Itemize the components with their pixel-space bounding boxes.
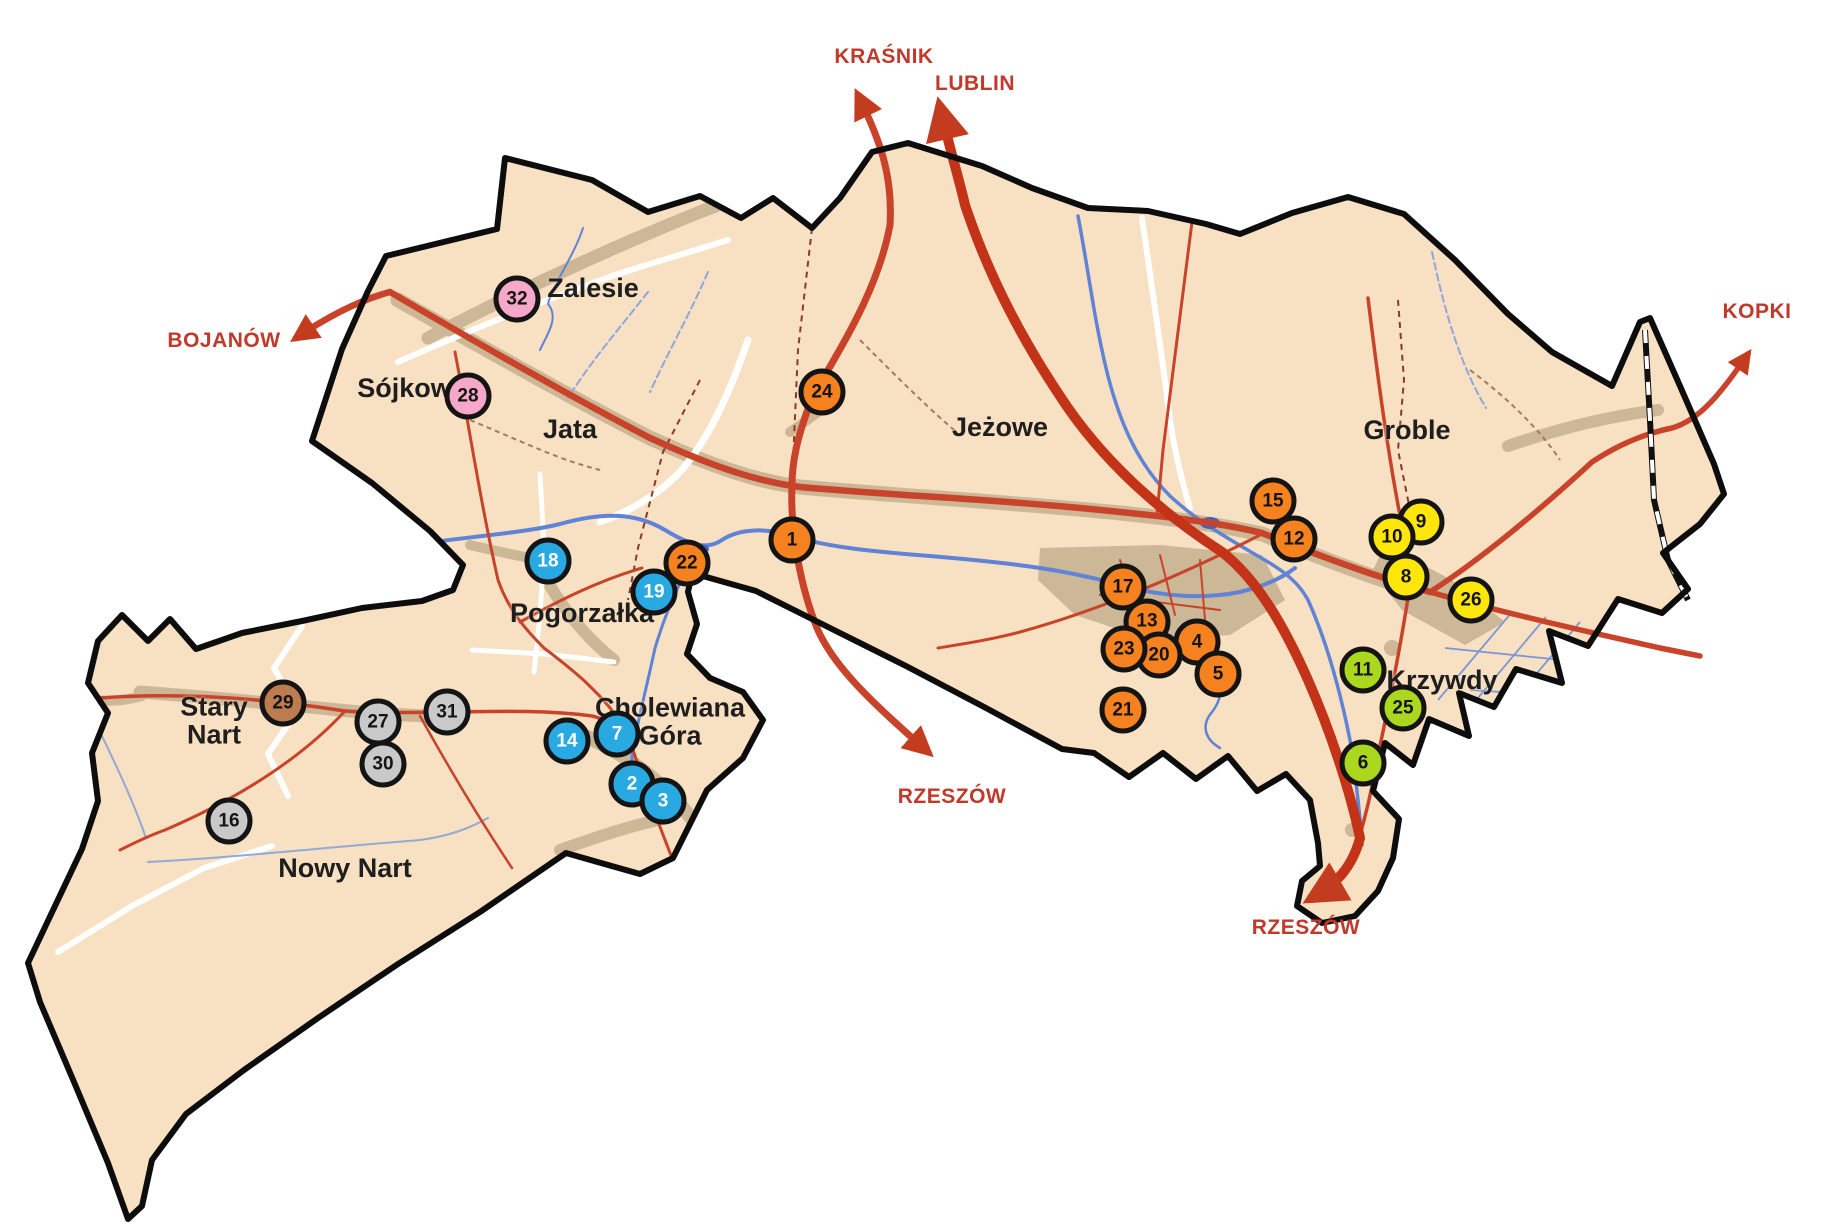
map-marker-1[interactable]: 1	[769, 517, 816, 564]
map-marker-14[interactable]: 14	[544, 718, 591, 765]
map-marker-3[interactable]: 3	[640, 778, 687, 825]
map-marker-31[interactable]: 31	[424, 689, 471, 736]
map-marker-15[interactable]: 15	[1250, 478, 1297, 525]
map-marker-29[interactable]: 29	[260, 680, 307, 727]
map-marker-6[interactable]: 6	[1340, 740, 1387, 787]
base-map	[0, 0, 1821, 1226]
map-marker-26[interactable]: 26	[1448, 577, 1495, 624]
map-marker-21[interactable]: 21	[1100, 687, 1147, 734]
map-marker-18[interactable]: 18	[525, 538, 572, 585]
map-marker-22[interactable]: 22	[664, 540, 711, 587]
map-marker-16[interactable]: 16	[206, 798, 253, 845]
map-marker-5[interactable]: 5	[1195, 651, 1242, 698]
map-marker-25[interactable]: 25	[1380, 685, 1427, 732]
map-marker-17[interactable]: 17	[1100, 564, 1147, 611]
map-marker-28[interactable]: 28	[445, 373, 492, 420]
map-marker-8[interactable]: 8	[1383, 554, 1430, 601]
map-marker-11[interactable]: 11	[1340, 647, 1387, 694]
map-marker-24[interactable]: 24	[799, 369, 846, 416]
map-marker-30[interactable]: 30	[360, 741, 407, 788]
map-marker-27[interactable]: 27	[355, 699, 402, 746]
map-marker-10[interactable]: 10	[1369, 514, 1416, 561]
map-marker-32[interactable]: 32	[494, 276, 541, 323]
map-marker-7[interactable]: 7	[593, 711, 640, 758]
municipality-map: ZalesieSójkowaJataJeżoweGroblePogorzałka…	[0, 0, 1821, 1226]
map-marker-23[interactable]: 23	[1101, 626, 1148, 673]
